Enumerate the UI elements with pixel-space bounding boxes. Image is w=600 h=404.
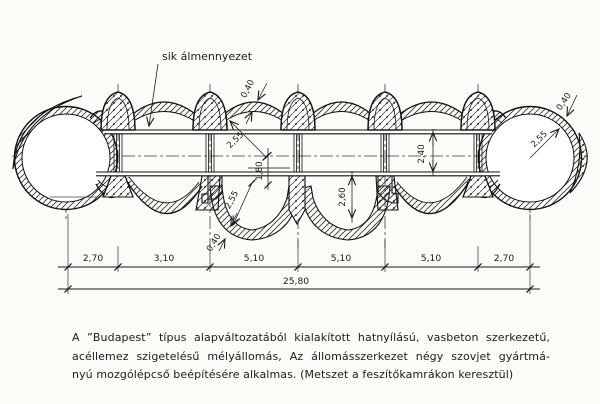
dim-chain-segment-5: 5,10 bbox=[421, 253, 442, 264]
false-ceiling-label: sik álmennyezet bbox=[162, 50, 253, 63]
leader-line bbox=[149, 64, 158, 126]
caption-line-3: nyú mozgólépcső beépítésére alkalmas. (M… bbox=[72, 366, 550, 385]
drawing-page: sik álmennyezet 0,40 2,55 bbox=[0, 0, 600, 400]
dim-hall-height: 2,40 bbox=[417, 144, 427, 163]
dim-chamber-depth: 2,60 bbox=[338, 187, 348, 206]
dim-trough-radius: 2,55 bbox=[223, 189, 241, 211]
dim-axis-to-platform: 1,80 bbox=[255, 161, 265, 180]
dimension-chain: 2,70 3,10 5,10 5,10 5,10 2,70 25,80 bbox=[58, 214, 540, 294]
dim-roof-thickness: 0,40 bbox=[239, 78, 257, 100]
dim-trough-lining-thickness: 0,40 bbox=[205, 232, 224, 254]
caption-line-1: A ”Budapest” típus alapváltozatából kial… bbox=[72, 329, 550, 348]
dim-right-lining-thickness: 0,40 bbox=[555, 91, 574, 112]
dim-chain-segment-3: 5,10 bbox=[244, 253, 265, 264]
platform-slab bbox=[96, 172, 500, 176]
dim-chain-segment-4: 5,10 bbox=[331, 253, 352, 264]
dim-chain-total: 25,80 bbox=[283, 276, 309, 287]
caption: A ”Budapest” típus alapváltozatából kial… bbox=[72, 329, 550, 385]
dim-chain-segment-6: 2,70 bbox=[494, 253, 515, 264]
caption-line-2: acéllemez szigetelésű mélyállomás, Az ál… bbox=[72, 348, 550, 367]
dim-chain-segment-1: 2,70 bbox=[83, 253, 104, 264]
dim-chain-segment-2: 3,10 bbox=[154, 253, 175, 264]
